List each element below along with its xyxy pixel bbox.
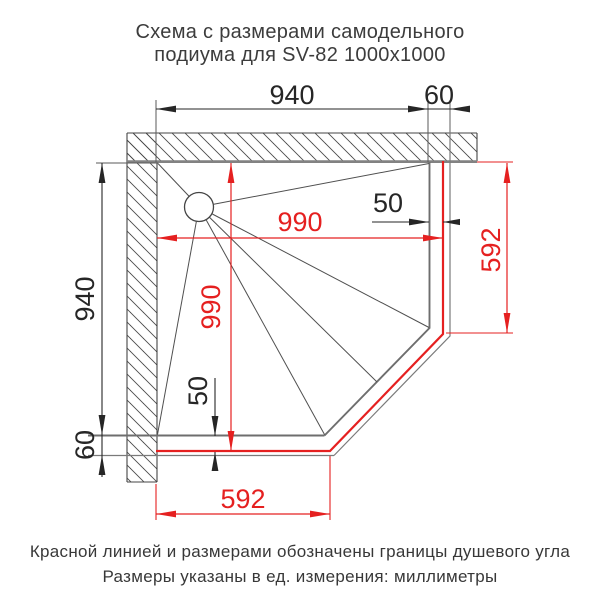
dimension-label: 990 xyxy=(277,207,322,237)
dimension-label: 990 xyxy=(196,284,226,329)
dimension-left-60: 60 xyxy=(70,430,105,475)
dimension-label: 60 xyxy=(70,430,100,460)
dimension-label: 50 xyxy=(373,188,403,218)
dimension-label: 940 xyxy=(269,80,314,110)
legend-note: Красной линией и размерами обозначены гр… xyxy=(0,540,600,589)
legend-note-line1: Красной линией и размерами обозначены гр… xyxy=(0,540,600,565)
dimension-offset-bottom-50: 50 xyxy=(183,376,218,471)
dimension-left-940: 940 xyxy=(70,163,105,477)
podium-schematic: 940 60 940 60 990 xyxy=(0,0,600,600)
drain-circle xyxy=(185,193,214,222)
dimension-top-940: 940 xyxy=(156,80,428,112)
dimension-label: 592 xyxy=(220,484,265,514)
dimension-label: 50 xyxy=(183,376,213,406)
dimension-offset-right-50: 50 xyxy=(372,188,460,225)
dimension-shower-side-bottom-592: 592 xyxy=(156,484,330,517)
dimension-label: 592 xyxy=(476,227,506,272)
dimension-label: 60 xyxy=(424,80,454,110)
legend-note-line2: Размеры указаны в ед. измерения: миллиме… xyxy=(0,565,600,590)
dimension-top-60: 60 xyxy=(424,80,470,112)
wall-hatching xyxy=(127,133,477,482)
dimension-shower-side-right-592: 592 xyxy=(476,163,510,333)
diagram-page: Схема с размерами самодельного подиума д… xyxy=(0,0,600,600)
dimension-label: 940 xyxy=(70,276,100,321)
